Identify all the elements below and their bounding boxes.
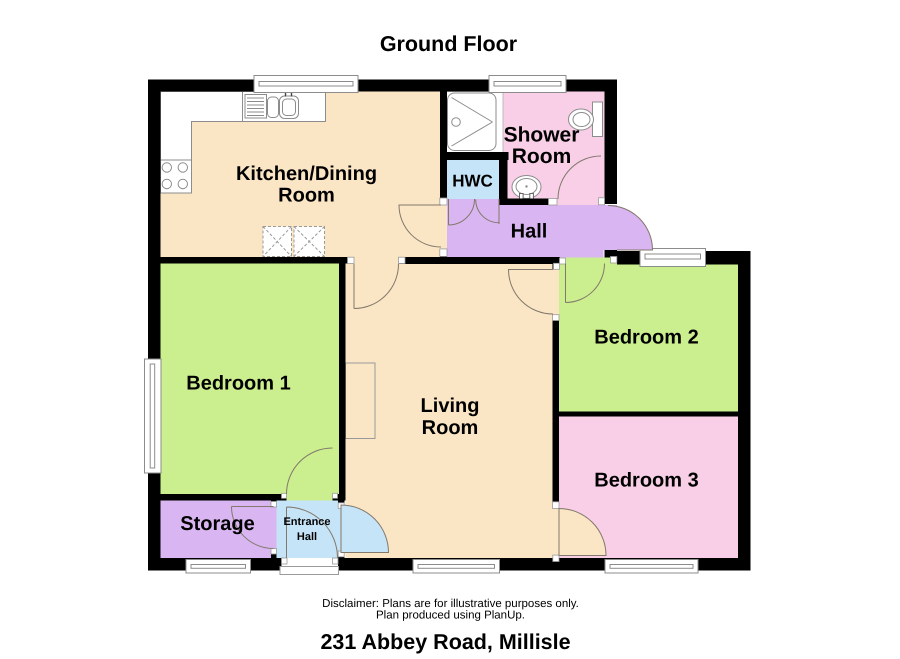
svg-text:Entrance: Entrance bbox=[283, 516, 330, 528]
svg-text:HWC: HWC bbox=[452, 172, 493, 191]
svg-text:Shower: Shower bbox=[504, 124, 580, 147]
svg-text:Storage: Storage bbox=[180, 513, 254, 535]
svg-text:Hall: Hall bbox=[297, 531, 317, 543]
svg-text:Bedroom 2: Bedroom 2 bbox=[594, 327, 698, 349]
svg-text:Hall: Hall bbox=[511, 221, 548, 243]
svg-text:231 Abbey Road, Millisle: 231 Abbey Road, Millisle bbox=[320, 630, 570, 654]
svg-text:Ground Floor: Ground Floor bbox=[380, 32, 518, 56]
svg-text:Plan produced using PlanUp.: Plan produced using PlanUp. bbox=[376, 610, 525, 622]
svg-text:Room: Room bbox=[422, 417, 479, 439]
svg-text:Disclaimer: Plans are for illu: Disclaimer: Plans are for illustrative p… bbox=[322, 598, 579, 610]
svg-text:Room: Room bbox=[512, 145, 572, 168]
svg-text:Living: Living bbox=[421, 395, 480, 417]
svg-text:Bedroom 1: Bedroom 1 bbox=[186, 373, 290, 395]
svg-text:Room: Room bbox=[278, 185, 335, 207]
svg-text:Bedroom 3: Bedroom 3 bbox=[594, 470, 698, 492]
svg-text:Kitchen/Dining: Kitchen/Dining bbox=[236, 163, 377, 185]
